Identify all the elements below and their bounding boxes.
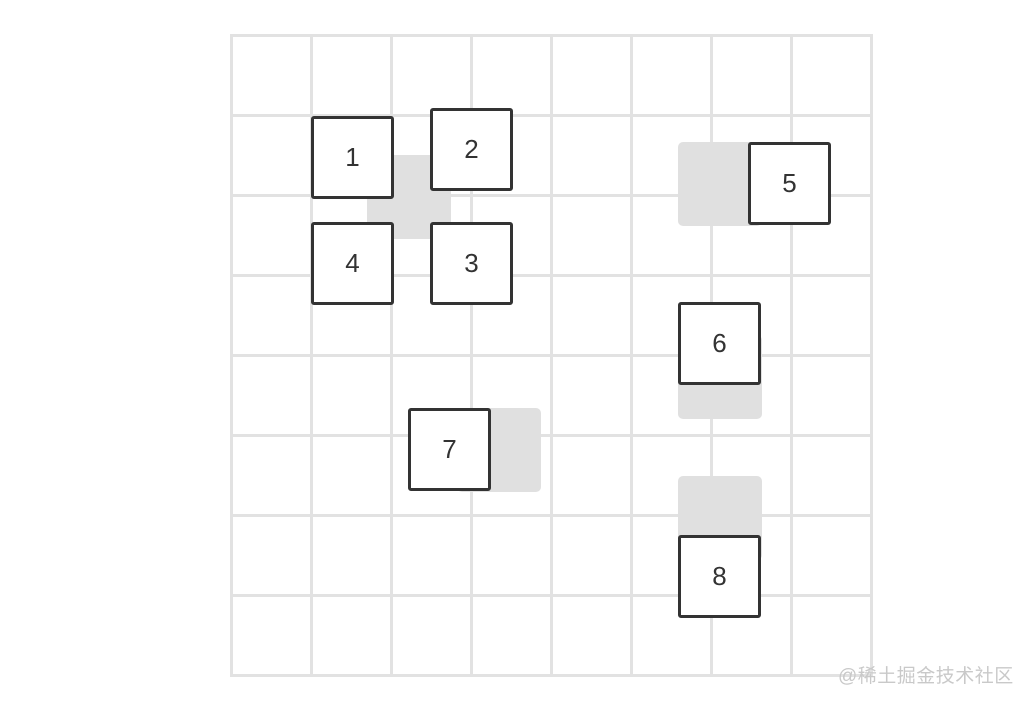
grid-box-5[interactable]: 5 xyxy=(748,142,831,225)
grid-box-7[interactable]: 7 xyxy=(408,408,491,491)
stage: 12345678@稀土掘金技术社区 xyxy=(0,0,1020,702)
watermark: @稀土掘金技术社区 xyxy=(838,661,1014,688)
grid-box-8[interactable]: 8 xyxy=(678,535,761,618)
grid-box-2[interactable]: 2 xyxy=(430,108,513,191)
grid-box-4[interactable]: 4 xyxy=(311,222,394,305)
grid-box-6[interactable]: 6 xyxy=(678,302,761,385)
grid-box-1[interactable]: 1 xyxy=(311,116,394,199)
grid-box-3[interactable]: 3 xyxy=(430,222,513,305)
